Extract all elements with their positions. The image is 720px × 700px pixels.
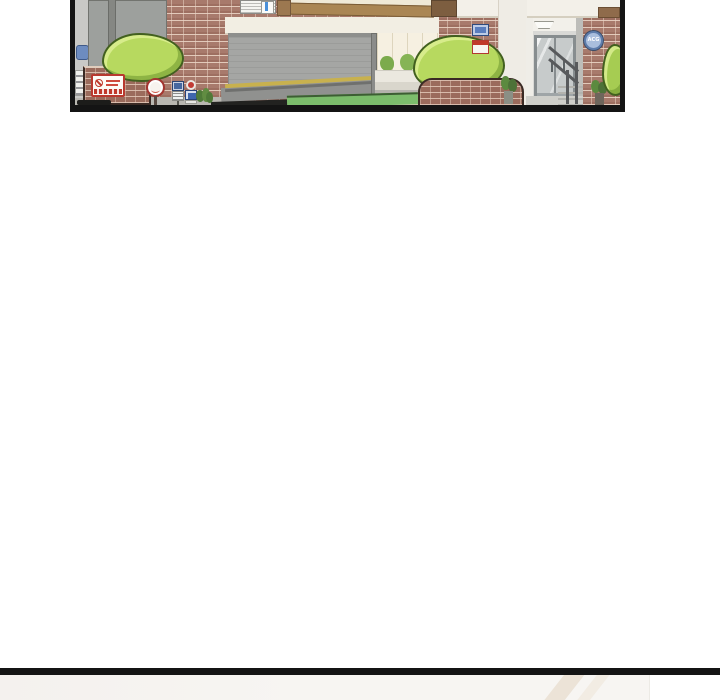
potted-plant xyxy=(500,76,518,105)
no-parking-sign xyxy=(91,74,125,97)
building-sign-blue xyxy=(472,24,489,36)
handrail-post xyxy=(575,62,578,104)
header-band xyxy=(225,17,439,34)
next-panel-top-border xyxy=(0,668,720,675)
sign-text-line xyxy=(106,84,118,86)
acg-emblem: ACG xyxy=(584,31,603,50)
entrance-ceiling xyxy=(526,18,583,31)
parking-sign-blue xyxy=(172,81,184,105)
comic-page: ACG xyxy=(0,0,720,700)
wood-post xyxy=(277,0,291,16)
sign-post xyxy=(177,101,179,105)
panel-gutter xyxy=(0,112,720,668)
wood-block xyxy=(431,0,457,17)
grass-strip xyxy=(287,92,418,107)
handrail-post xyxy=(566,70,569,104)
sign-banner xyxy=(94,89,122,94)
ground-shadow xyxy=(77,100,111,105)
leaf-icon xyxy=(206,92,213,103)
pot xyxy=(595,93,604,105)
doorway-jamb xyxy=(526,18,533,105)
comic-panel-building-entrance: ACG xyxy=(70,0,625,112)
wood-beam-right xyxy=(598,7,620,18)
shrub-small xyxy=(196,88,213,105)
no-parking-icon xyxy=(95,79,103,87)
sign-face-white xyxy=(172,91,184,101)
round-traffic-sign xyxy=(146,78,165,97)
entrance-canopy xyxy=(457,0,620,18)
sign-face-red xyxy=(186,80,196,90)
bush-right xyxy=(602,44,625,96)
door-stile xyxy=(554,38,556,98)
building-sign-red xyxy=(472,40,489,54)
sign-face-blue xyxy=(172,81,184,91)
sign-text-line xyxy=(106,80,120,82)
wall-shading xyxy=(0,675,300,700)
sign-post xyxy=(154,96,157,105)
entrance-steps xyxy=(558,86,583,105)
ac-sticker xyxy=(265,2,268,11)
entrance-doorway xyxy=(526,18,583,105)
plant-icon xyxy=(380,56,394,71)
comic-panel-next-sliver xyxy=(0,675,650,700)
pot xyxy=(504,91,513,104)
